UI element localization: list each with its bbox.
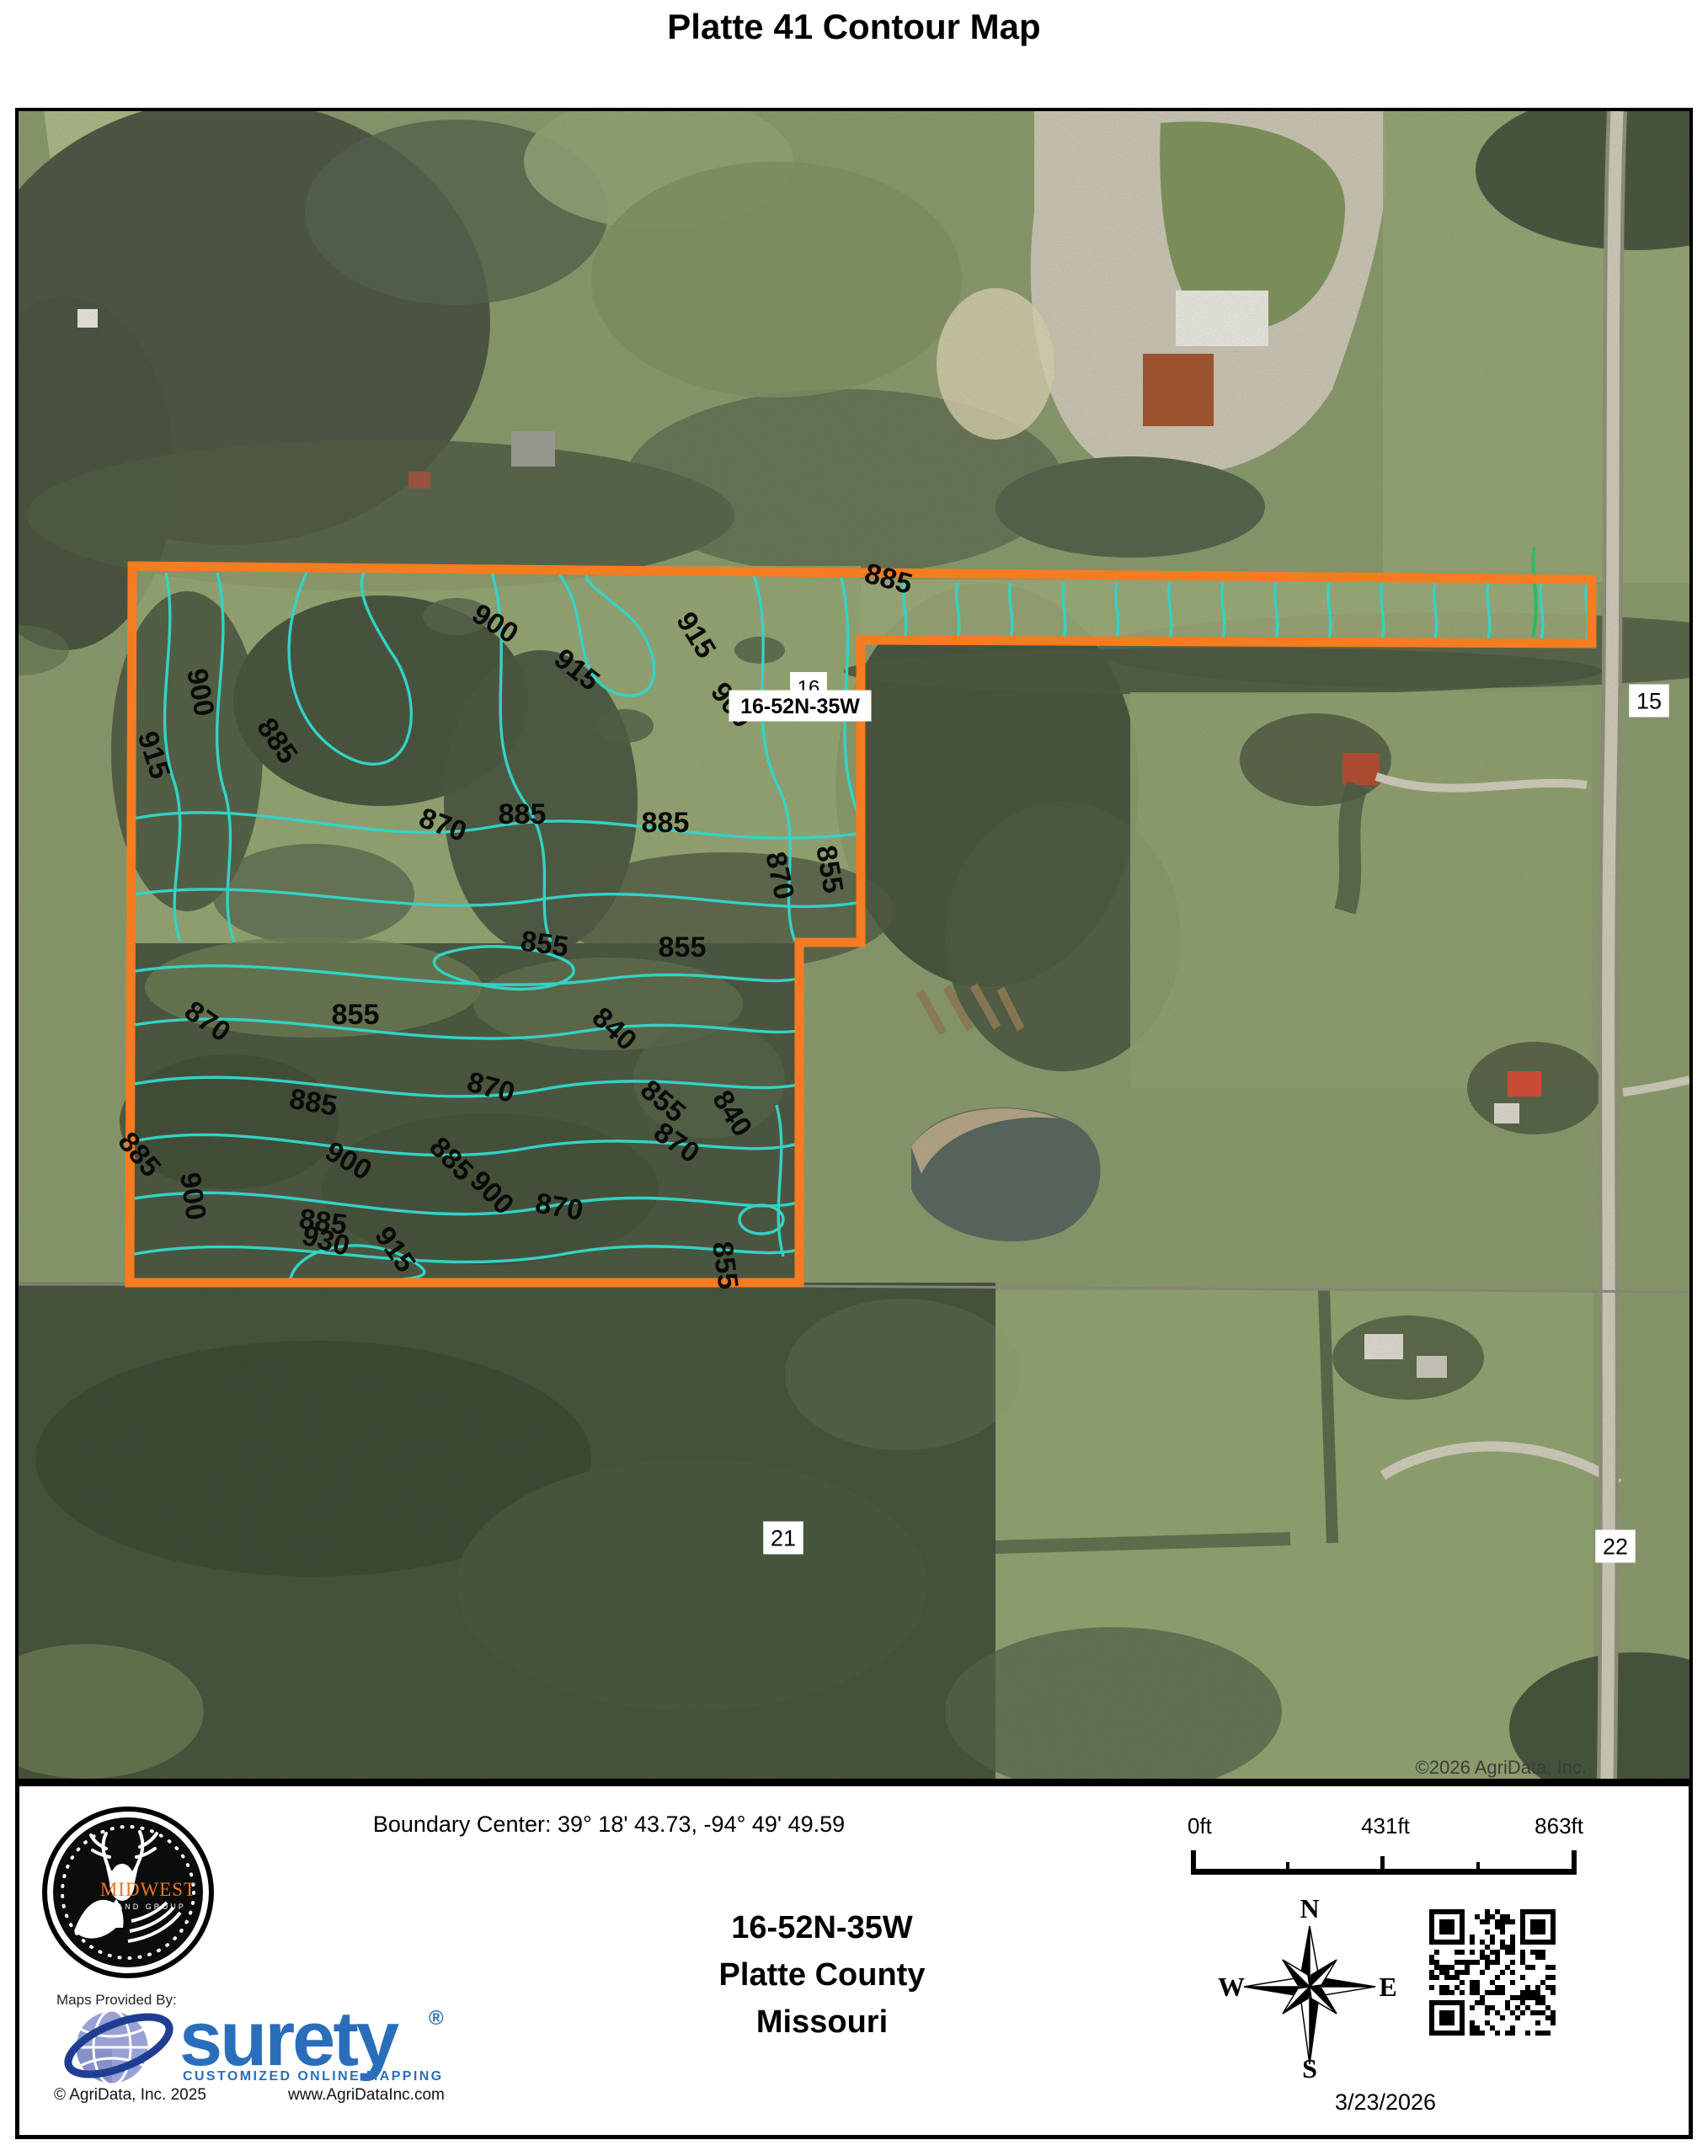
surety-logo: surety ® CUSTOMIZED ONLINE MAPPING [51, 2007, 456, 2091]
section-label: 21 [763, 1522, 803, 1555]
svg-text:21: 21 [771, 1526, 796, 1551]
midwest-land-group-logo: MIDWEST LAND GROUP [40, 1805, 216, 1980]
scale-end-label: 863ft [1535, 1813, 1583, 1839]
contour-map-report-page: Platte 41 Contour Map [0, 0, 1708, 2156]
map-credit: ©2026 AgriData, Inc. [1416, 1757, 1587, 1778]
contour-elevation-label: 855 [519, 925, 570, 963]
contour-elevation-label: 855 [706, 1240, 745, 1291]
midwest-logo-subtext: LAND GROUP [110, 1903, 186, 1911]
section-label: 22 [1595, 1530, 1635, 1563]
svg-text:16-52N-35W: 16-52N-35W [740, 695, 860, 718]
map-date: 3/23/2026 [1259, 2089, 1512, 2116]
contour-elevation-label: 900 [173, 1171, 212, 1222]
contour-elevation-label: 855 [332, 999, 380, 1031]
scale-bar-labels: 0ft 431ft 863ft [1188, 1813, 1583, 1838]
aerial-map: 8859159009159009158859008858708858708558… [15, 108, 1693, 1782]
location-state: Missouri [611, 1999, 1033, 2046]
midwest-logo-text: MIDWEST [100, 1879, 196, 1900]
svg-text:15: 15 [1636, 689, 1662, 714]
section-label: 15 [1629, 685, 1668, 718]
scale-bar [1188, 1844, 1583, 1879]
footer-panel: Boundary Center: 39° 18' 43.73, -94° 49'… [15, 1782, 1693, 2139]
maps-provided-by-label: Maps Provided By: [56, 1992, 177, 2009]
location-county: Platte County [611, 1951, 1033, 1999]
compass-rose: N E S W [1214, 1899, 1405, 2081]
compass-north-label: N [1300, 1899, 1319, 1924]
contour-elevation-label: 885 [642, 807, 690, 839]
surety-tagline: CUSTOMIZED ONLINE MAPPING [183, 2069, 444, 2084]
page-title: Platte 41 Contour Map [0, 7, 1708, 47]
contour-elevation-label: 885 [297, 1203, 349, 1241]
compass-south-label: S [1302, 2053, 1317, 2081]
compass-west-label: W [1218, 1972, 1245, 2002]
globe-icon [63, 2007, 189, 2091]
section-label: 16-52N-35W [729, 691, 872, 722]
compass-east-label: E [1379, 1972, 1396, 2002]
contour-elevation-label: 885 [499, 798, 547, 830]
location-trs: 16-52N-35W [611, 1904, 1033, 1951]
agridata-website: www.AgriDataInc.com [288, 2086, 445, 2105]
contour-elevation-label: 855 [659, 931, 707, 963]
agridata-copyright: © AgriData, Inc. 2025 [54, 2086, 206, 2105]
map-canvas: 8859159009159009158859008858708858708558… [19, 111, 1689, 1779]
scale-mid-label: 431ft [1188, 1813, 1583, 1839]
location-block: 16-52N-35W Platte County Missouri [611, 1904, 1033, 2046]
registered-trademark-symbol: ® [429, 2007, 444, 2031]
qr-code [1429, 1909, 1556, 2036]
svg-text:22: 22 [1603, 1534, 1628, 1560]
